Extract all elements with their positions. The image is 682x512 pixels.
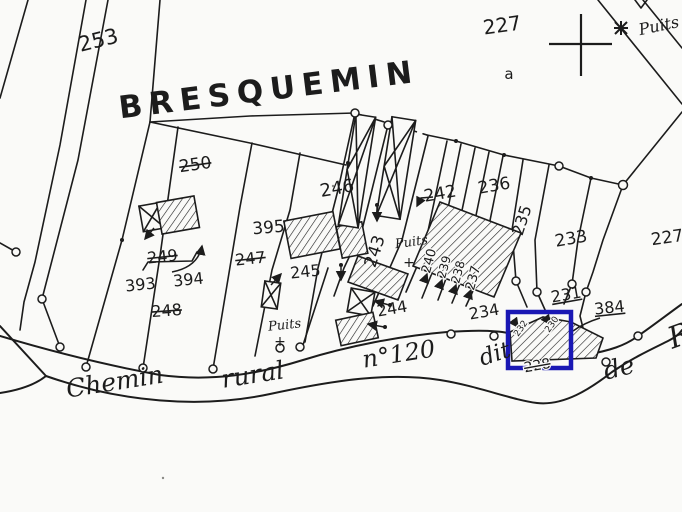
parcel-231: 231 xyxy=(549,283,582,307)
road-name-chemin: Chemin xyxy=(64,360,165,404)
parcel-242: 242 xyxy=(422,181,457,206)
parcel-228-struck: 228 xyxy=(523,356,552,376)
parcel-227: 227 xyxy=(481,11,522,40)
building-hatched-394 xyxy=(157,196,200,234)
parcel-234: 234 xyxy=(467,300,500,324)
subdivision-a: a xyxy=(504,65,513,83)
survey-cross-icon xyxy=(549,14,612,76)
parcel-394: 394 xyxy=(172,268,204,290)
building-light-244 xyxy=(347,288,375,316)
parcel-393: 393 xyxy=(124,273,156,295)
road-name-n120: n°120 xyxy=(360,335,437,374)
building-light-long-1 xyxy=(338,114,375,228)
parcel-250-struck: 250 xyxy=(178,153,213,177)
cadastral-map[interactable]: 253BRESQUEMIN227aPuits250246242236235233… xyxy=(0,0,682,512)
parcel-253: 253 xyxy=(76,24,121,57)
building-hatched-395 xyxy=(284,212,340,259)
building-light-long-2 xyxy=(376,117,415,220)
building-hatched-244 xyxy=(336,312,379,345)
well-cross-south: + xyxy=(274,334,286,350)
road-name-partial-letter: R xyxy=(662,316,682,357)
well-cross-center: + xyxy=(403,255,415,271)
parcel-245: 245 xyxy=(289,260,321,282)
clipped-symbol-top-edge xyxy=(635,0,647,8)
well-marker-star-icon xyxy=(614,21,628,35)
parcel-395: 395 xyxy=(252,217,286,240)
parcel-233: 233 xyxy=(553,226,588,251)
parcel-236: 236 xyxy=(476,173,511,198)
road-fork-branch xyxy=(0,326,46,376)
parcel-235: 235 xyxy=(508,203,536,238)
road-name-de: de xyxy=(600,350,637,386)
building-light-245 xyxy=(261,281,280,309)
parcel-244: 244 xyxy=(375,297,408,321)
road-name-rural: rural xyxy=(219,355,286,393)
cadastral-map-page: 253BRESQUEMIN227aPuits250246242236235233… xyxy=(0,0,682,512)
parcel-227-right-edge-partial: 227 xyxy=(650,226,682,250)
parcel-384: 384 xyxy=(593,296,625,318)
well-label-top-right: Puits xyxy=(636,12,681,39)
parcel-247-struck: 247 xyxy=(234,247,266,269)
well-label-south: Puits xyxy=(266,316,302,335)
parcel-249-struck: 249 xyxy=(146,245,178,267)
parcel-248-struck: 248 xyxy=(151,300,183,321)
